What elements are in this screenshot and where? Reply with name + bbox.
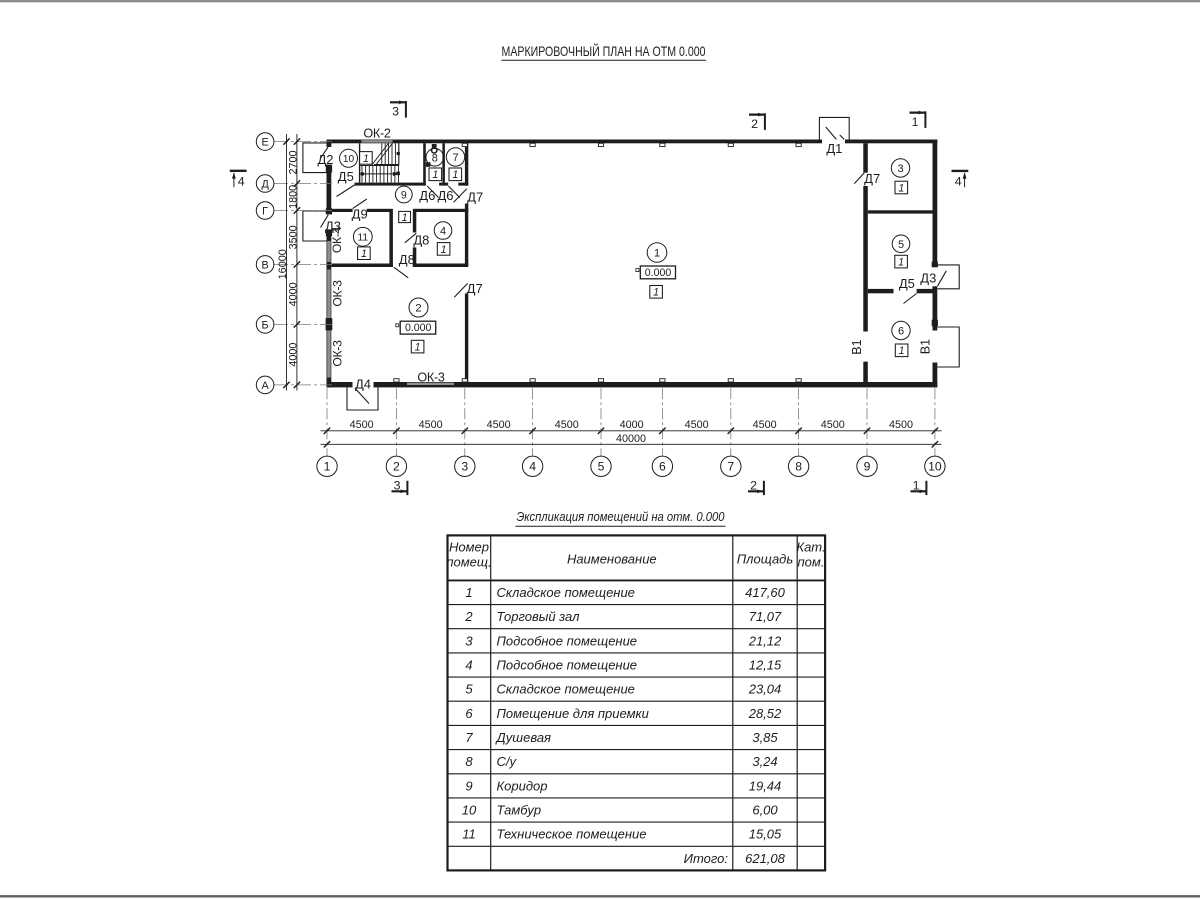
svg-text:Д6: Д6 bbox=[437, 188, 453, 203]
svg-text:2: 2 bbox=[464, 609, 473, 624]
svg-text:Площадь: Площадь bbox=[737, 551, 794, 566]
svg-text:Наименование: Наименование bbox=[567, 551, 657, 566]
svg-text:Е: Е bbox=[261, 137, 268, 149]
svg-text:Складское помещение: Складское помещение bbox=[497, 682, 635, 697]
svg-text:ОК-4: ОК-4 bbox=[330, 226, 344, 253]
svg-text:1: 1 bbox=[402, 212, 408, 224]
svg-text:В: В bbox=[261, 259, 268, 271]
svg-text:1: 1 bbox=[441, 244, 447, 256]
svg-text:Д9: Д9 bbox=[352, 207, 368, 222]
svg-text:10: 10 bbox=[928, 460, 942, 474]
svg-text:3500: 3500 bbox=[287, 225, 299, 249]
svg-text:Б: Б bbox=[262, 319, 269, 331]
svg-text:6: 6 bbox=[659, 460, 666, 474]
svg-text:2: 2 bbox=[393, 460, 400, 474]
svg-text:помещ.: помещ. bbox=[446, 554, 491, 569]
svg-text:Тамбур: Тамбур bbox=[497, 803, 542, 818]
svg-text:2: 2 bbox=[750, 478, 757, 492]
svg-text:4500: 4500 bbox=[350, 419, 374, 431]
svg-text:4000: 4000 bbox=[287, 282, 299, 306]
svg-text:4: 4 bbox=[465, 658, 472, 673]
svg-text:ОК-3: ОК-3 bbox=[330, 340, 344, 367]
svg-text:7: 7 bbox=[452, 152, 458, 164]
svg-text:6,00: 6,00 bbox=[752, 803, 778, 818]
svg-text:3: 3 bbox=[392, 105, 399, 119]
svg-text:Подсобное помещение: Подсобное помещение bbox=[497, 658, 638, 673]
svg-text:5: 5 bbox=[598, 460, 605, 474]
svg-text:Д: Д bbox=[261, 178, 269, 190]
svg-text:3: 3 bbox=[394, 478, 401, 492]
svg-text:3,24: 3,24 bbox=[752, 754, 777, 769]
svg-text:Д1: Д1 bbox=[826, 141, 842, 156]
svg-text:Д2: Д2 bbox=[317, 152, 333, 167]
svg-text:МАРКИРОВОЧНЫЙ ПЛАН НА ОТМ 0.00: МАРКИРОВОЧНЫЙ ПЛАН НА ОТМ 0.000 bbox=[502, 44, 706, 59]
svg-text:2: 2 bbox=[415, 303, 421, 315]
svg-text:4: 4 bbox=[529, 460, 536, 474]
svg-text:0.000: 0.000 bbox=[405, 322, 432, 334]
svg-text:1: 1 bbox=[912, 115, 919, 129]
svg-text:С/у: С/у bbox=[497, 754, 518, 769]
svg-text:1: 1 bbox=[415, 342, 421, 354]
svg-text:3: 3 bbox=[465, 633, 473, 648]
svg-text:В1: В1 bbox=[850, 339, 864, 354]
svg-text:пом.: пом. bbox=[798, 554, 825, 569]
svg-text:4: 4 bbox=[238, 175, 245, 189]
svg-text:5: 5 bbox=[898, 239, 904, 251]
svg-text:Д4: Д4 bbox=[355, 377, 371, 392]
svg-text:1: 1 bbox=[432, 169, 438, 181]
svg-text:Г: Г bbox=[262, 205, 268, 217]
svg-text:Экспликация помещений на отм.: Экспликация помещений на отм. 0.000 bbox=[517, 509, 726, 524]
svg-text:71,07: 71,07 bbox=[749, 609, 782, 624]
svg-text:28,52: 28,52 bbox=[748, 706, 782, 721]
svg-text:3,85: 3,85 bbox=[752, 730, 778, 745]
svg-text:Коридор: Коридор bbox=[497, 778, 548, 793]
svg-text:А: А bbox=[261, 380, 269, 392]
svg-text:11: 11 bbox=[462, 827, 476, 842]
svg-text:7: 7 bbox=[727, 460, 734, 474]
svg-text:Номер: Номер bbox=[449, 540, 489, 555]
svg-text:1: 1 bbox=[654, 248, 660, 260]
svg-text:4: 4 bbox=[440, 226, 446, 238]
svg-text:2: 2 bbox=[751, 117, 758, 131]
svg-text:1: 1 bbox=[452, 169, 458, 181]
svg-text:8: 8 bbox=[432, 152, 438, 164]
svg-text:21,12: 21,12 bbox=[748, 633, 782, 648]
svg-text:ОК-3: ОК-3 bbox=[330, 280, 344, 307]
svg-text:Д5: Д5 bbox=[338, 169, 354, 184]
svg-text:Итого:: Итого: bbox=[684, 851, 729, 866]
svg-text:40000: 40000 bbox=[616, 433, 646, 445]
svg-text:4500: 4500 bbox=[555, 419, 579, 431]
svg-text:6: 6 bbox=[898, 326, 904, 338]
svg-text:621,08: 621,08 bbox=[745, 851, 786, 866]
svg-text:4500: 4500 bbox=[419, 419, 443, 431]
svg-text:Торговый зал: Торговый зал bbox=[497, 609, 581, 624]
svg-text:1: 1 bbox=[913, 478, 920, 492]
svg-text:Душевая: Душевая bbox=[495, 730, 552, 745]
svg-text:4000: 4000 bbox=[620, 419, 644, 431]
svg-text:1: 1 bbox=[899, 345, 905, 357]
svg-text:4000: 4000 bbox=[287, 343, 299, 367]
svg-text:3: 3 bbox=[897, 163, 903, 175]
svg-text:11: 11 bbox=[358, 233, 369, 244]
svg-text:4: 4 bbox=[955, 175, 962, 189]
svg-text:9: 9 bbox=[401, 189, 407, 201]
svg-text:4500: 4500 bbox=[685, 419, 709, 431]
svg-text:Д7: Д7 bbox=[467, 281, 483, 296]
svg-text:Складское помещение: Складское помещение bbox=[497, 585, 635, 600]
svg-text:12,15: 12,15 bbox=[749, 658, 782, 673]
svg-text:Кат.: Кат. bbox=[796, 540, 825, 555]
svg-text:1: 1 bbox=[363, 153, 369, 165]
svg-text:10: 10 bbox=[462, 803, 477, 818]
svg-text:Д7: Д7 bbox=[467, 190, 483, 205]
svg-text:4500: 4500 bbox=[889, 419, 913, 431]
svg-text:1: 1 bbox=[465, 585, 472, 600]
svg-text:9: 9 bbox=[864, 460, 871, 474]
svg-text:417,60: 417,60 bbox=[745, 585, 786, 600]
svg-text:7: 7 bbox=[465, 730, 473, 745]
svg-text:8: 8 bbox=[465, 754, 473, 769]
svg-text:Д3: Д3 bbox=[920, 270, 936, 285]
svg-text:Д7: Д7 bbox=[864, 171, 880, 186]
svg-text:0.000: 0.000 bbox=[645, 267, 672, 279]
svg-text:19,44: 19,44 bbox=[749, 778, 782, 793]
svg-text:4500: 4500 bbox=[753, 419, 777, 431]
svg-text:2700: 2700 bbox=[287, 150, 299, 174]
svg-text:1: 1 bbox=[361, 248, 367, 260]
svg-text:5: 5 bbox=[465, 682, 473, 697]
svg-text:1: 1 bbox=[898, 182, 904, 194]
svg-text:10: 10 bbox=[343, 154, 355, 165]
svg-text:Д8: Д8 bbox=[413, 232, 429, 247]
svg-text:ОК-3: ОК-3 bbox=[417, 370, 444, 384]
svg-text:Д6: Д6 bbox=[419, 188, 435, 203]
svg-text:16000: 16000 bbox=[277, 249, 289, 279]
svg-text:9: 9 bbox=[465, 778, 472, 793]
svg-text:Подсобное помещение: Подсобное помещение bbox=[497, 633, 638, 648]
svg-text:3: 3 bbox=[461, 460, 468, 474]
svg-text:23,04: 23,04 bbox=[748, 682, 782, 697]
svg-text:6: 6 bbox=[465, 706, 473, 721]
svg-text:Д8: Д8 bbox=[399, 252, 415, 267]
svg-text:4500: 4500 bbox=[487, 419, 511, 431]
svg-text:15,05: 15,05 bbox=[749, 827, 782, 842]
svg-text:4500: 4500 bbox=[821, 419, 845, 431]
svg-text:ОК-2: ОК-2 bbox=[363, 127, 390, 141]
svg-text:1800: 1800 bbox=[287, 185, 299, 209]
svg-text:В1: В1 bbox=[919, 339, 933, 354]
svg-text:Д5: Д5 bbox=[899, 276, 915, 291]
svg-text:1: 1 bbox=[653, 287, 659, 299]
svg-text:1: 1 bbox=[898, 257, 904, 269]
svg-text:Помещение для приемки: Помещение для приемки bbox=[497, 706, 649, 721]
svg-text:Техническое помещение: Техническое помещение bbox=[497, 827, 647, 842]
svg-text:8: 8 bbox=[795, 460, 802, 474]
svg-text:1: 1 bbox=[324, 460, 331, 474]
